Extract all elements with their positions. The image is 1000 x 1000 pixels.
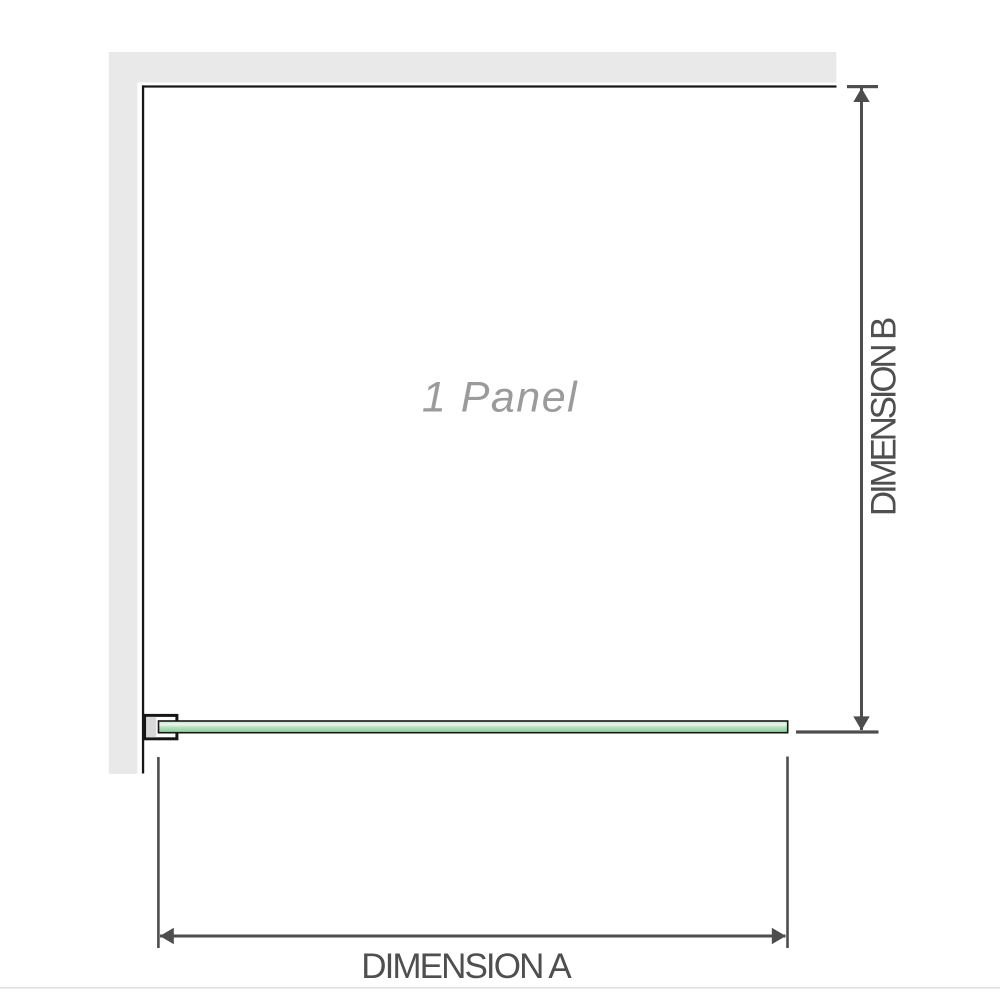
- svg-text:DIMENSION B: DIMENSION B: [865, 318, 904, 516]
- svg-text:DIMENSION A: DIMENSION A: [361, 947, 572, 986]
- svg-text:1 Panel: 1 Panel: [422, 374, 578, 422]
